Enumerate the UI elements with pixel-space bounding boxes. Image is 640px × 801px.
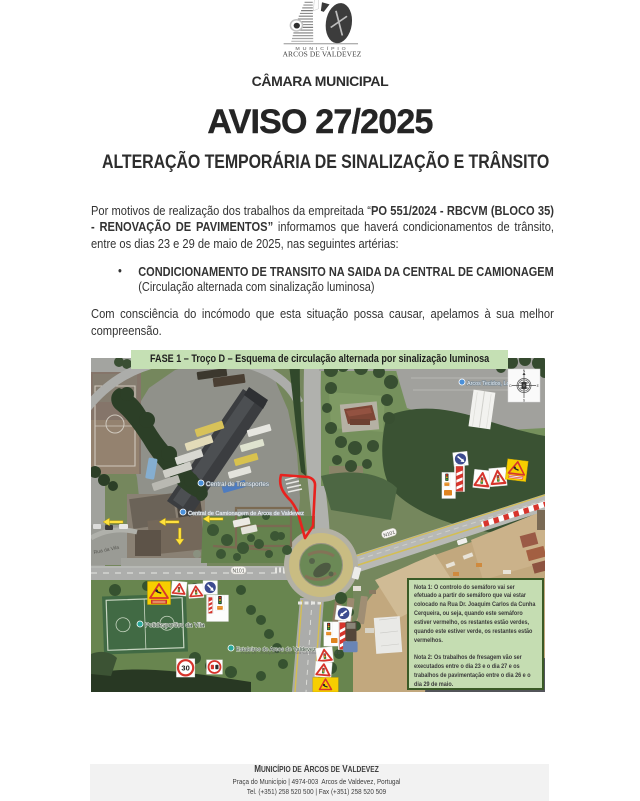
svg-text:Arcos Tecidos, Lda: Arcos Tecidos, Lda [467,381,512,387]
svg-text:30: 30 [181,664,189,673]
svg-text:Central de Transportes: Central de Transportes [206,481,269,488]
svg-text:ARCOS DE VALDEVEZ: ARCOS DE VALDEVEZ [283,51,362,58]
svg-text:Central de Camionagem de Arcos: Central de Camionagem de Arcos de Valdev… [188,511,304,517]
svg-text:Polidesportivo da Vila: Polidesportivo da Vila [145,622,205,629]
svg-text:N101: N101 [233,568,245,574]
svg-text:O: O [509,384,512,388]
